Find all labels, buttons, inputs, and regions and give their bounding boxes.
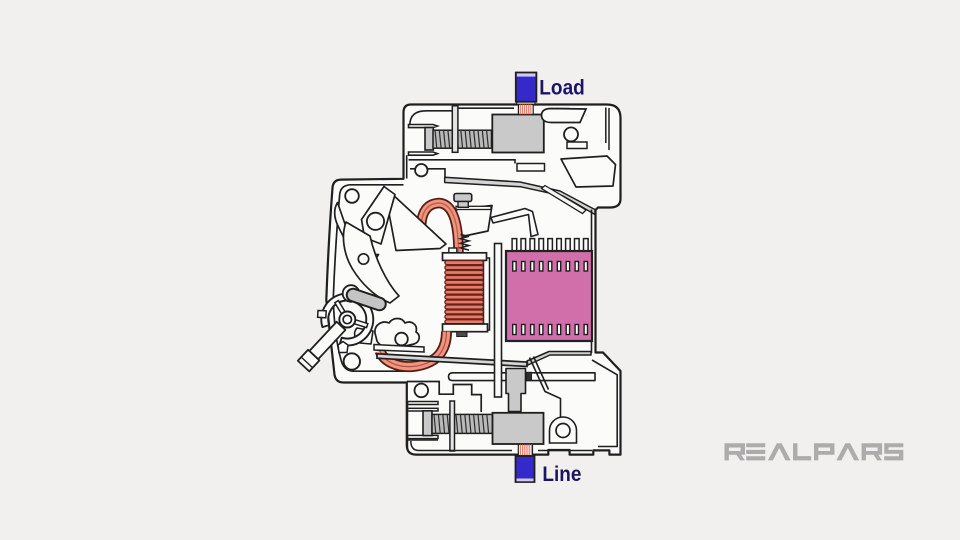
svg-text:Load: Load bbox=[539, 77, 585, 100]
svg-text:Line: Line bbox=[542, 463, 581, 486]
